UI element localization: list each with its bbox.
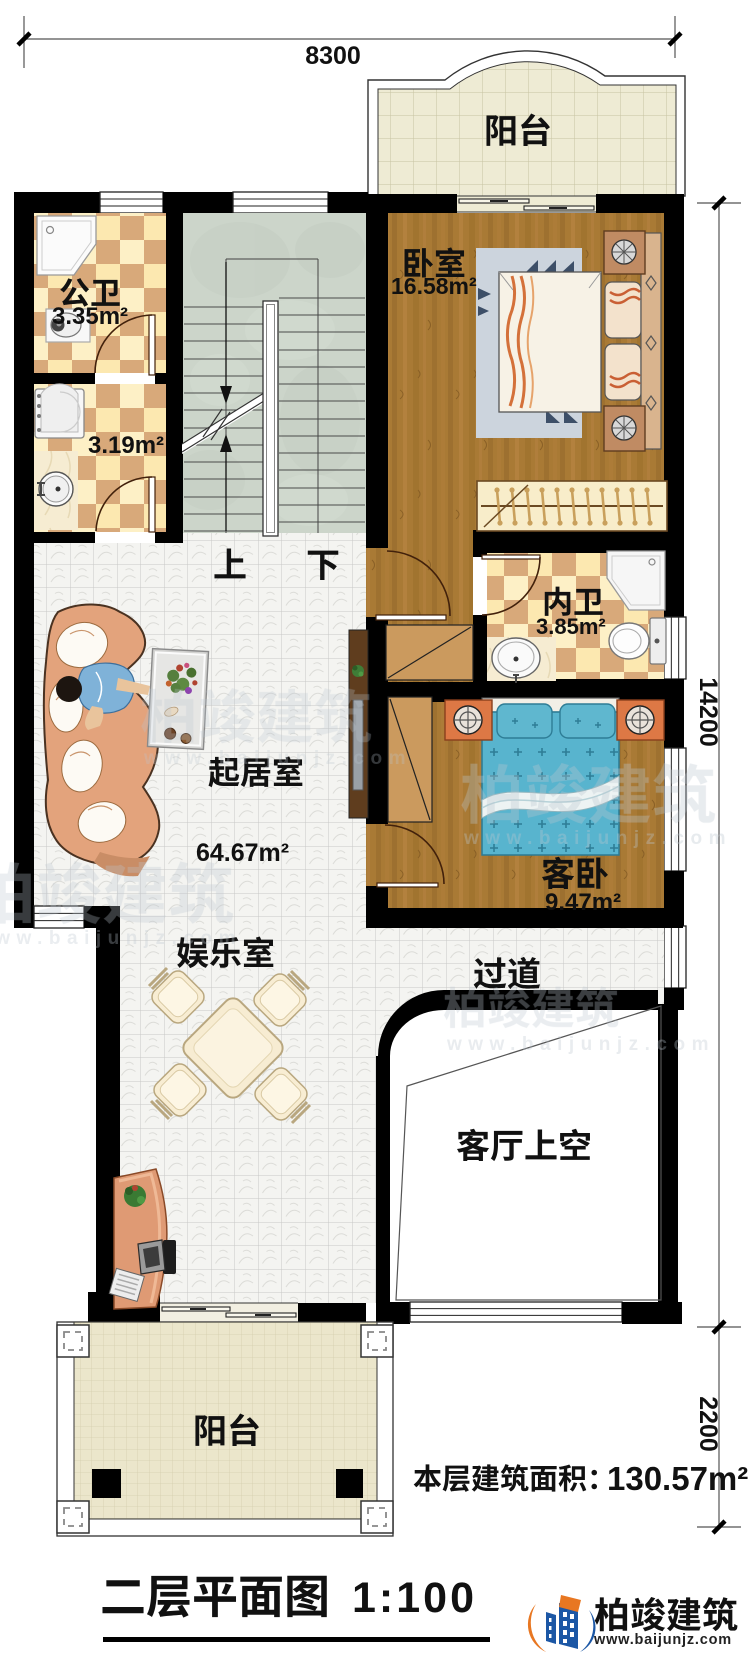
svg-text:www.baijunjz.com: www.baijunjz.com — [446, 1034, 715, 1055]
svg-text:130.57m²: 130.57m² — [607, 1460, 748, 1497]
svg-text:www.baijunjz.com: www.baijunjz.com — [143, 748, 412, 769]
svg-text:3.19m²: 3.19m² — [88, 432, 164, 459]
svg-text:1:100: 1:100 — [352, 1574, 477, 1622]
svg-text:2200: 2200 — [694, 1396, 722, 1452]
svg-text:9.47m²: 9.47m² — [545, 889, 621, 916]
svg-text:www.baijunjz.com: www.baijunjz.com — [463, 828, 732, 849]
svg-text:3.85m²: 3.85m² — [536, 614, 606, 639]
svg-text:8300: 8300 — [305, 42, 361, 70]
svg-text:www.baijunjz.com: www.baijunjz.com — [0, 928, 242, 949]
svg-text:www.baijunjz.com: www.baijunjz.com — [593, 1632, 732, 1648]
svg-text:14200: 14200 — [694, 677, 722, 747]
svg-text:16.58m²: 16.58m² — [391, 273, 477, 299]
svg-text:3.35m²: 3.35m² — [52, 303, 128, 330]
